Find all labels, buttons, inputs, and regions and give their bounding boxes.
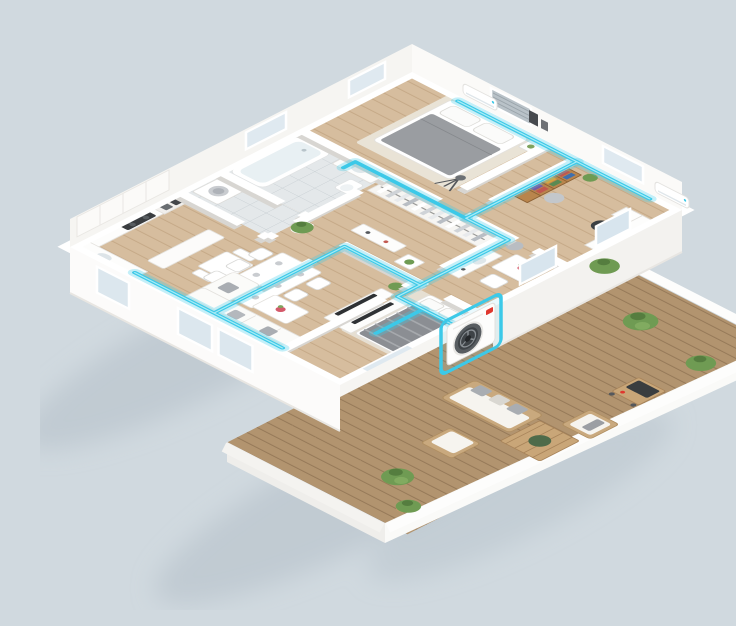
- floor-plan-canvas: [40, 16, 736, 610]
- floor-plan-render: [40, 16, 736, 610]
